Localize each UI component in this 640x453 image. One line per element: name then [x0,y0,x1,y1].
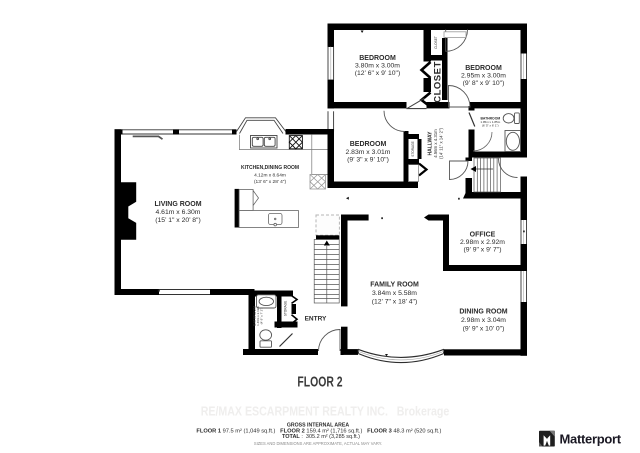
svg-text:FLOOR 2: FLOOR 2 [297,374,342,390]
svg-text:Matterport: Matterport [560,431,622,446]
svg-text:STORAGE: STORAGE [411,141,415,157]
svg-text:(9’ 3" x 9’ 10"): (9’ 3" x 9’ 10") [347,157,389,164]
svg-text:FAMILY ROOM: FAMILY ROOM [370,282,419,289]
svg-text:3.80m x 3.00m: 3.80m x 3.00m [355,63,400,70]
svg-text:(4’ 9" x 7’ 2"): (4’ 9" x 7’ 2") [259,308,263,325]
svg-text:(9’ 9" x 9’ 7"): (9’ 9" x 9’ 7") [464,247,502,254]
svg-text:(12’ 7" x 18’ 4"): (12’ 7" x 18’ 4") [372,299,418,306]
svg-text:TOTAL : 305.2 m² (3,285 sq.ft: TOTAL : 305.2 m² (3,285 sq.ft.) [282,434,360,440]
svg-text:STORAGE: STORAGE [284,301,288,317]
svg-text:BEDROOM: BEDROOM [350,141,387,148]
svg-text:SIZES AND DIMENSIONS ARE APPRO: SIZES AND DIMENSIONS ARE APPROXIMATE, AC… [254,441,382,446]
svg-text:4.56m x 4.31m: 4.56m x 4.31m [433,129,438,158]
svg-text:(9’ 9" x 10’ 0"): (9’ 9" x 10’ 0") [463,326,505,333]
svg-text:BEDROOM: BEDROOM [465,65,502,72]
svg-text:2.95m x 3.00m: 2.95m x 3.00m [461,73,506,80]
svg-text:(15’ 1" x 20’ 8"): (15’ 1" x 20’ 8") [155,217,201,224]
svg-text:LIVING ROOM: LIVING ROOM [154,201,201,208]
svg-text:2.98m x 2.92m: 2.98m x 2.92m [460,239,505,246]
svg-text:RE/MAX ESCARPMENT REALTY INC.: RE/MAX ESCARPMENT REALTY INC. Brokerage [201,405,450,419]
svg-text:4.61m x 6.30m: 4.61m x 6.30m [156,209,201,216]
svg-text:(6’ 5" x 6’ 1"): (6’ 5" x 6’ 1") [482,123,499,127]
svg-text:ENTRY: ENTRY [305,316,327,323]
svg-text:2.83m x 3.01m: 2.83m x 3.01m [346,149,391,156]
svg-text:3.84m x 5.58m: 3.84m x 5.58m [372,290,417,297]
svg-text:CLOSET: CLOSET [434,36,438,49]
svg-text:(13’ 6" x 28’ 4"): (13’ 6" x 28’ 4") [254,179,287,185]
svg-text:(9’ 8" x 9’ 10"): (9’ 8" x 9’ 10") [463,80,505,87]
svg-text:DINING ROOM: DINING ROOM [459,309,507,316]
svg-text:2.98m x 3.04m: 2.98m x 3.04m [461,317,506,324]
svg-text:(14’ 11" x 14’ 2"): (14’ 11" x 14’ 2") [438,128,443,159]
svg-text:OFFICE: OFFICE [470,232,496,239]
svg-text:4.12m x 8.64m: 4.12m x 8.64m [254,173,286,179]
svg-text:CLOSET: CLOSET [433,61,444,103]
svg-text:(12’ 6" x 9’ 10"): (12’ 6" x 9’ 10") [355,70,401,77]
svg-text:KITCHEN,DINING ROOM: KITCHEN,DINING ROOM [241,165,299,171]
svg-text:BEDROOM: BEDROOM [359,55,396,62]
